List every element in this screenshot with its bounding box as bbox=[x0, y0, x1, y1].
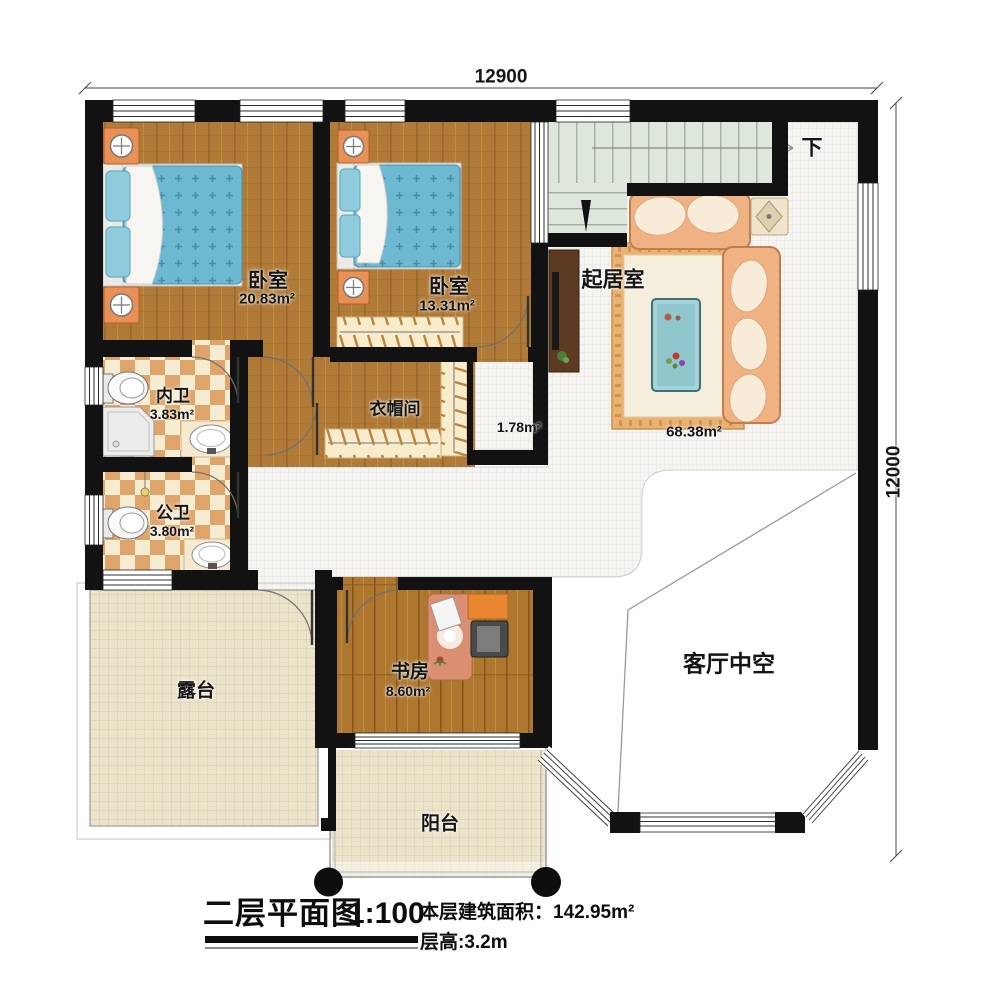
room-area-bedroom-second: 13.31m² bbox=[419, 299, 475, 314]
dimension-top: 12900 bbox=[475, 68, 528, 87]
dimension-right: 12000 bbox=[885, 446, 904, 499]
shower-corner bbox=[103, 407, 154, 456]
bed-master bbox=[103, 164, 242, 286]
title-underline-thin bbox=[205, 947, 418, 949]
room-label-terrace: 露台 bbox=[177, 682, 215, 701]
room-label-study: 书房 bbox=[391, 663, 429, 682]
floor-plan-image: 12900 12000 卧室 20.83m² 卧室 13.31m² 起居室 68… bbox=[0, 0, 1000, 990]
plan-scale: 1:100 bbox=[348, 899, 425, 929]
room-area-living: 68.38m² bbox=[666, 425, 722, 440]
floor-terrace bbox=[77, 583, 331, 839]
toilet-public bbox=[101, 507, 148, 539]
plan-graphics bbox=[0, 0, 1000, 990]
room-label-living: 起居室 bbox=[582, 270, 645, 291]
title-underline bbox=[205, 936, 418, 943]
room-label-cloakroom: 衣帽间 bbox=[370, 401, 421, 418]
bay-window bbox=[538, 746, 868, 833]
atrium-outline bbox=[618, 473, 856, 812]
room-area-bath-public: 3.80m² bbox=[150, 524, 194, 538]
floor-height-line: 层高:3.2m bbox=[420, 933, 508, 952]
wardrobe-second-bedroom bbox=[337, 317, 463, 348]
room-label-bedroom-second: 卧室 bbox=[429, 277, 469, 297]
side-table-lamp bbox=[751, 198, 788, 235]
floor-area-line: 本层建筑面积：142.95m² bbox=[420, 903, 634, 922]
floor-area-label: 本层建筑面积： bbox=[420, 902, 553, 923]
room-label-atrium: 客厅中空 bbox=[683, 653, 775, 676]
floor-area-value: 142.95m² bbox=[553, 902, 634, 923]
stair-direction-label: 下 bbox=[802, 138, 823, 159]
plan-title: 二层平面图 bbox=[203, 898, 363, 929]
room-label-bedroom-master: 卧室 bbox=[248, 271, 288, 291]
bed-second bbox=[337, 163, 461, 269]
room-area-cloakroom: 1.78m² bbox=[497, 420, 541, 434]
coffee-table bbox=[652, 299, 700, 391]
room-area-study: 8.60m² bbox=[386, 684, 430, 698]
tv-cabinet bbox=[549, 250, 579, 372]
room-label-balcony: 阳台 bbox=[421, 815, 459, 834]
room-area-bath-private: 3.83m² bbox=[150, 407, 194, 421]
room-area-bedroom-master: 20.83m² bbox=[239, 292, 295, 307]
room-label-bath-private: 内卫 bbox=[156, 388, 190, 405]
room-label-bath-public: 公卫 bbox=[156, 505, 190, 522]
toilet-private bbox=[101, 372, 148, 404]
